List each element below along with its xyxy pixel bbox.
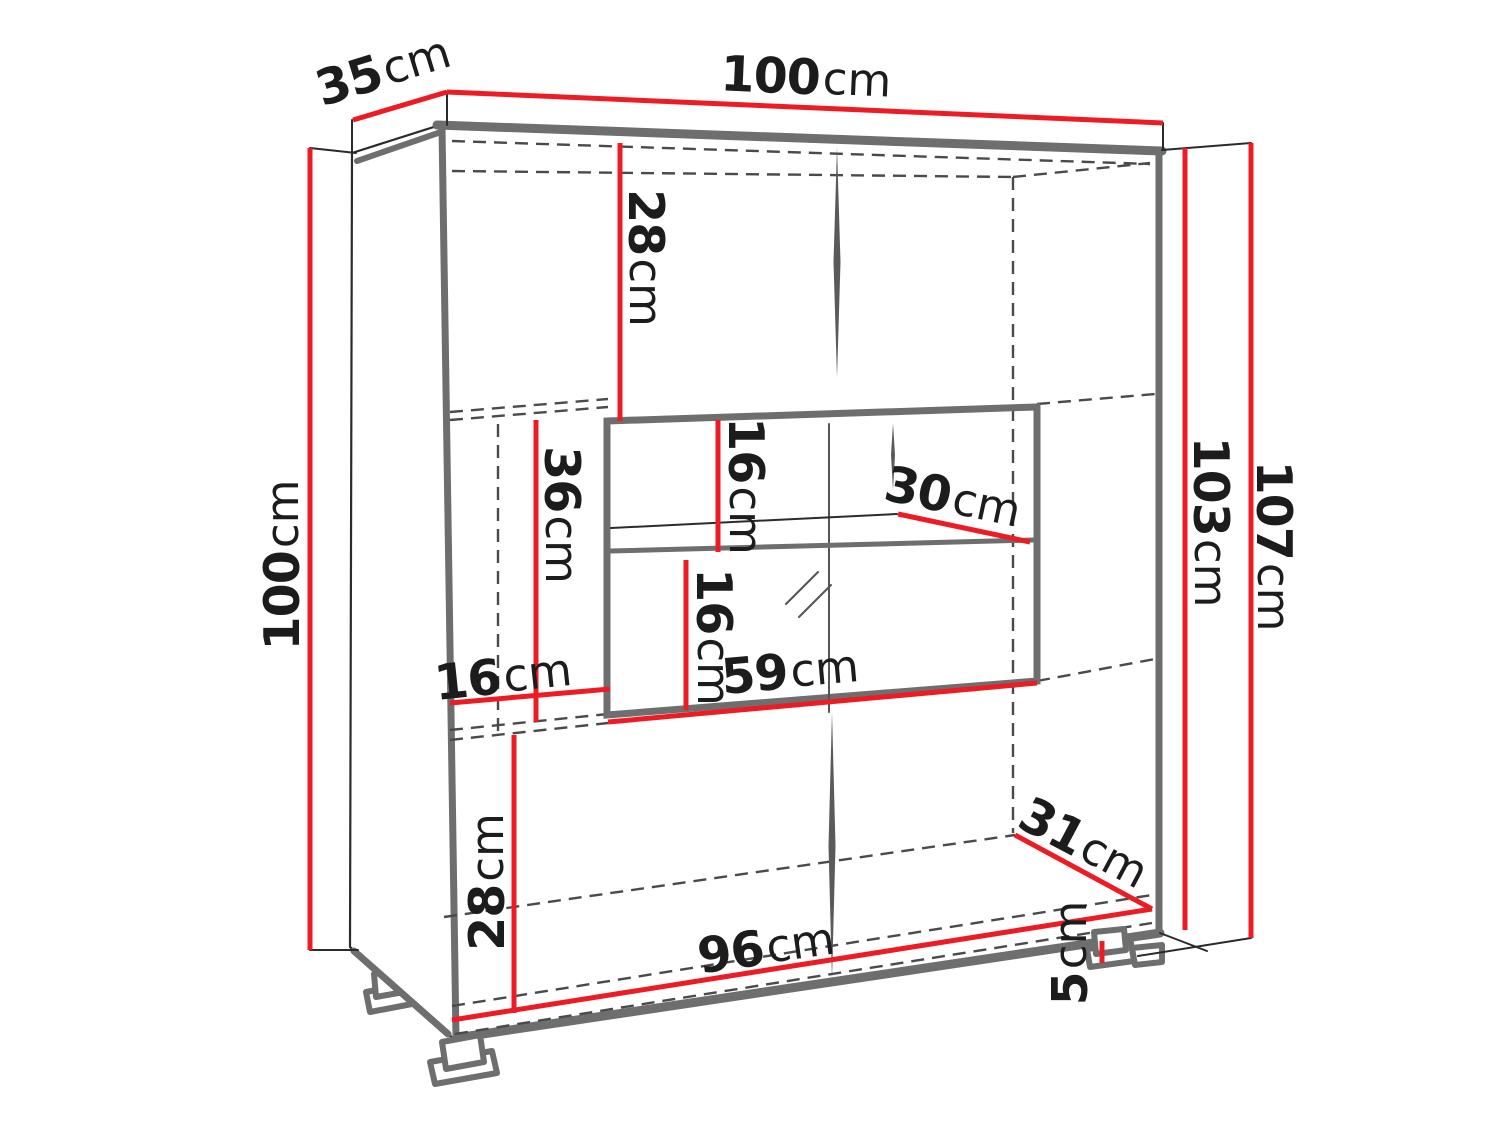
leg-front-left	[430, 1035, 497, 1084]
left-side-panel	[350, 125, 455, 1040]
dim-label-middle-left: 36cm	[534, 446, 591, 584]
dim-label-glass-upper: 16cm	[718, 417, 775, 555]
dim-label-width-top: 100cm	[719, 45, 892, 109]
dim-label-depth-top: 35cm	[309, 23, 457, 118]
dim-label-height-left: 100cm	[254, 480, 311, 651]
dim-label-height-inner-right: 103cm	[1183, 437, 1240, 608]
dim-label-leg-height: 5cm	[1042, 901, 1099, 1006]
dim-label-height-outer-right: 107cm	[1246, 461, 1303, 632]
dim-label-bottom-section: 28cm	[459, 813, 516, 951]
cabinet-dimension-diagram: 35cm 100cm 100cm 103cm 107cm 28cm 36cm 1…	[0, 0, 1500, 1125]
diagram-stage: 35cm 100cm 100cm 103cm 107cm 28cm 36cm 1…	[0, 0, 1500, 1125]
dim-label-top-section: 28cm	[618, 189, 675, 327]
